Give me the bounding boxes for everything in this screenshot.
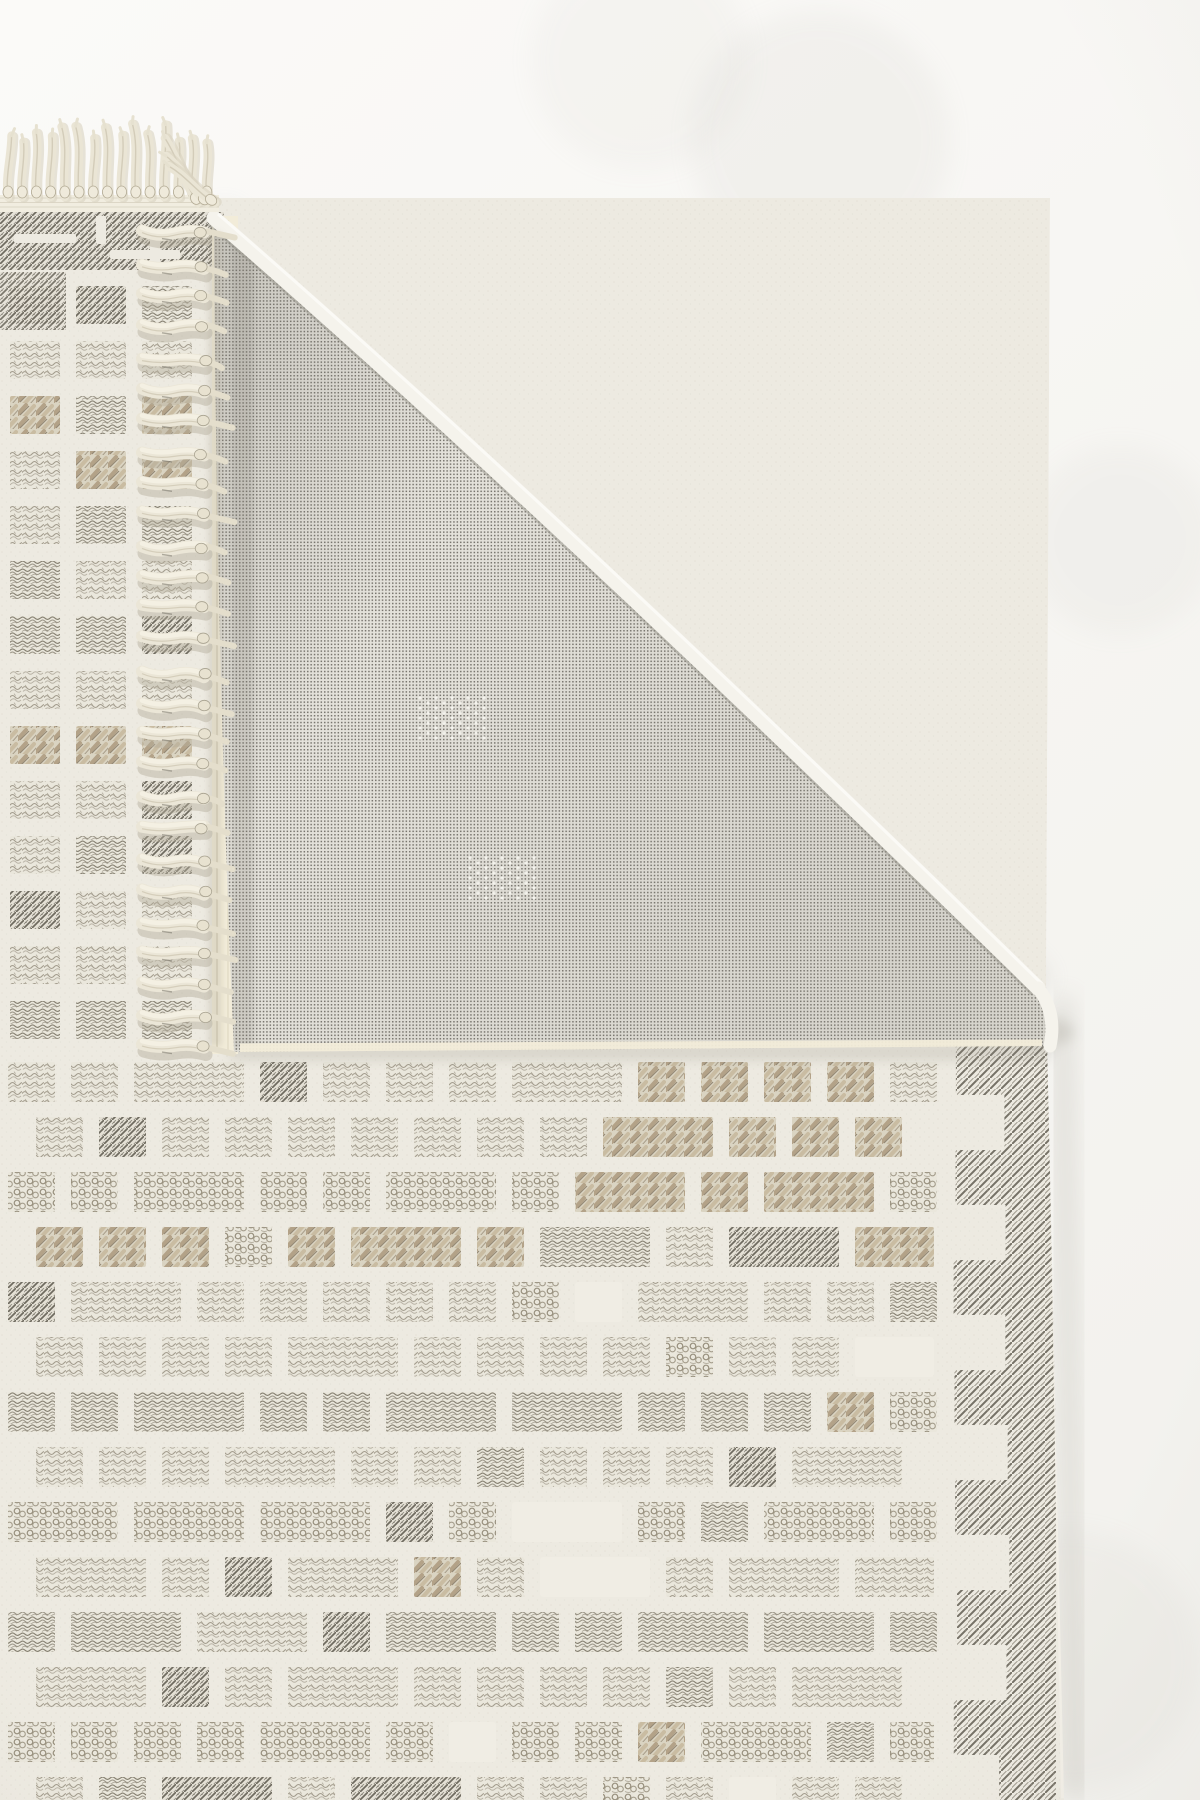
photo-canvas xyxy=(0,0,1200,1800)
rug-product-photo: Product photograph of a cream geometric … xyxy=(0,0,1200,1800)
photo-finish xyxy=(0,0,1200,1800)
vignette xyxy=(0,0,1200,1800)
